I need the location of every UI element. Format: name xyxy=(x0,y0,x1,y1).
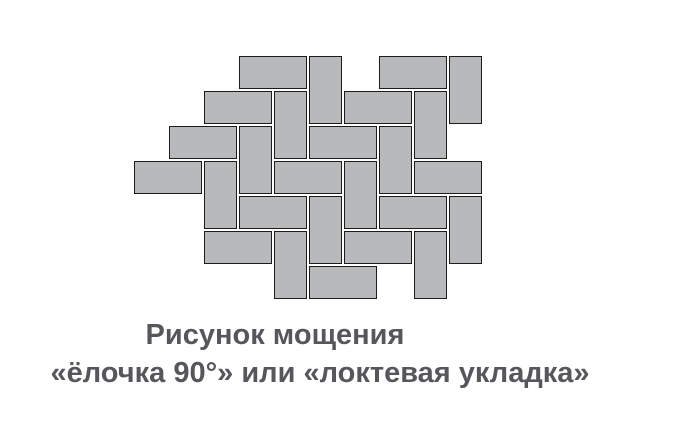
paving-brick xyxy=(414,91,447,159)
paving-brick xyxy=(274,91,307,159)
paving-brick xyxy=(274,161,342,194)
paving-brick xyxy=(239,196,307,229)
paving-brick xyxy=(309,126,377,159)
paving-brick xyxy=(344,161,377,229)
caption-line-1: Рисунок мощения xyxy=(146,321,405,350)
paving-brick xyxy=(379,56,447,89)
paving-brick xyxy=(204,161,237,229)
paving-brick xyxy=(134,161,202,194)
paving-brick xyxy=(309,56,342,124)
paving-brick xyxy=(379,126,412,194)
paving-brick xyxy=(169,126,237,159)
paving-brick xyxy=(449,196,482,264)
paving-brick xyxy=(204,231,272,264)
paving-brick xyxy=(274,231,307,299)
paving-pattern-diagram xyxy=(0,0,688,315)
paving-brick xyxy=(449,56,482,124)
paving-brick xyxy=(414,231,447,299)
figure: Рисунок мощения «ёлочка 90°» или «локтев… xyxy=(0,0,688,445)
paving-brick xyxy=(344,91,412,124)
paving-brick xyxy=(344,231,412,264)
paving-brick xyxy=(204,91,272,124)
paving-brick xyxy=(309,196,342,264)
paving-brick xyxy=(414,161,482,194)
paving-brick xyxy=(239,126,272,194)
caption-line-2: «ёлочка 90°» или «локтевая укладка» xyxy=(50,359,589,388)
paving-brick xyxy=(239,56,307,89)
paving-brick xyxy=(379,196,447,229)
paving-brick xyxy=(309,266,377,299)
